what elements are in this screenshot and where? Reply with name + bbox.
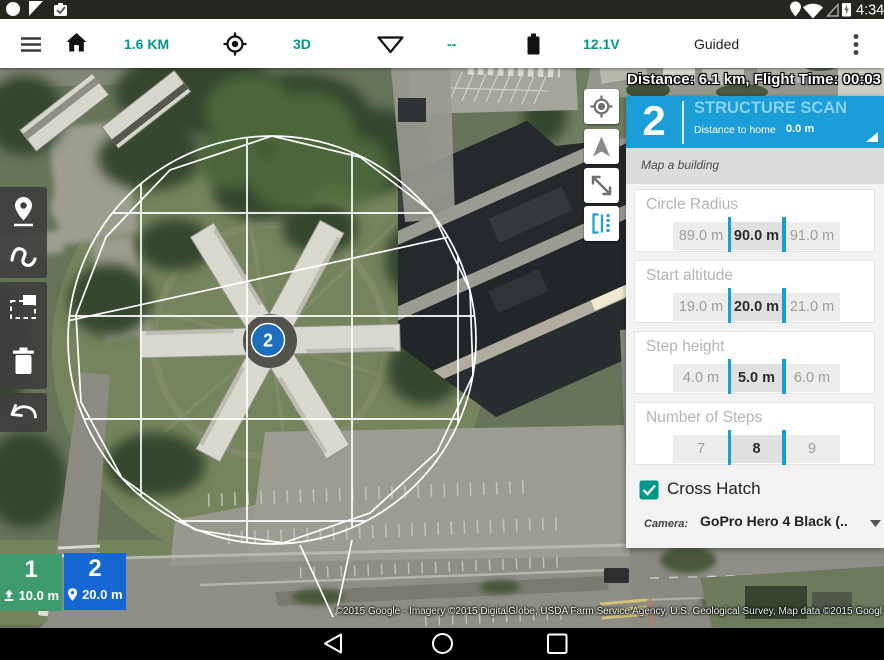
svg-text:2: 2 bbox=[263, 331, 273, 351]
svg-text:4:34: 4:34 bbox=[856, 3, 884, 19]
